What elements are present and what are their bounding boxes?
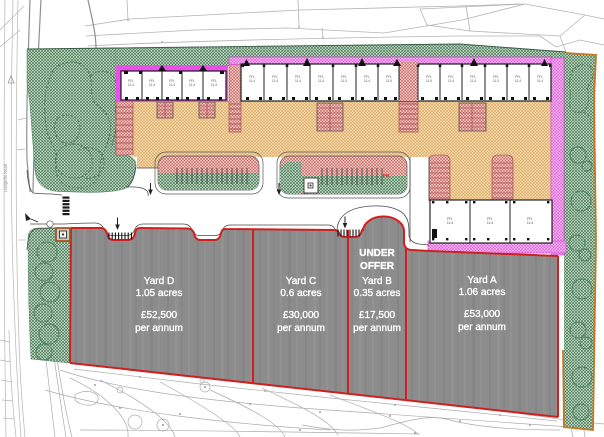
svg-text:11.4: 11.4 (448, 79, 454, 83)
svg-text:£17,500: £17,500 (359, 310, 396, 321)
svg-text:11.4: 11.4 (211, 83, 217, 87)
svg-text:11.4: 11.4 (128, 83, 134, 87)
svg-text:Yard C: Yard C (286, 276, 316, 287)
svg-text:1.05 acres: 1.05 acres (136, 288, 183, 299)
svg-text:11.4: 11.4 (249, 79, 255, 83)
svg-text:per annum: per annum (135, 323, 183, 334)
svg-text:£30,000: £30,000 (283, 310, 320, 321)
svg-text:11.4: 11.4 (515, 79, 521, 83)
svg-text:11.4: 11.4 (364, 79, 370, 83)
svg-text:UNDER: UNDER (359, 248, 395, 259)
svg-text:11.4: 11.4 (272, 79, 278, 83)
svg-text:£53,000: £53,000 (464, 309, 501, 320)
svg-text:11.4: 11.4 (295, 79, 301, 83)
svg-text:11.4: 11.4 (149, 83, 155, 87)
svg-text:FH: FH (383, 173, 389, 178)
svg-text:Yard B: Yard B (362, 276, 392, 287)
svg-text:1.06 acres: 1.06 acres (459, 287, 506, 298)
svg-text:11.4: 11.4 (527, 221, 533, 225)
svg-text:OFFER: OFFER (360, 261, 395, 272)
svg-text:11.4: 11.4 (341, 79, 347, 83)
svg-text:11.4: 11.4 (447, 221, 453, 225)
svg-text:11.4: 11.4 (189, 83, 195, 87)
svg-text:Yard A: Yard A (467, 275, 497, 286)
svg-text:Llangefni Road: Llangefni Road (3, 163, 8, 192)
svg-text:11.4: 11.4 (487, 221, 493, 225)
svg-text:0.35 acres: 0.35 acres (354, 288, 401, 299)
svg-text:per annum: per annum (458, 322, 506, 333)
svg-text:£52,500: £52,500 (141, 310, 178, 321)
svg-text:11.4: 11.4 (537, 79, 543, 83)
svg-text:0.6 acres: 0.6 acres (280, 288, 321, 299)
svg-text:11.4: 11.4 (318, 79, 324, 83)
svg-text:11.4: 11.4 (386, 79, 392, 83)
svg-text:Yard D: Yard D (144, 276, 174, 287)
svg-text:11.4: 11.4 (470, 79, 476, 83)
svg-text:11.4: 11.4 (169, 83, 175, 87)
svg-text:per annum: per annum (353, 323, 401, 334)
svg-text:11.4: 11.4 (493, 79, 499, 83)
svg-text:per annum: per annum (277, 323, 325, 334)
svg-text:11.4: 11.4 (426, 79, 432, 83)
